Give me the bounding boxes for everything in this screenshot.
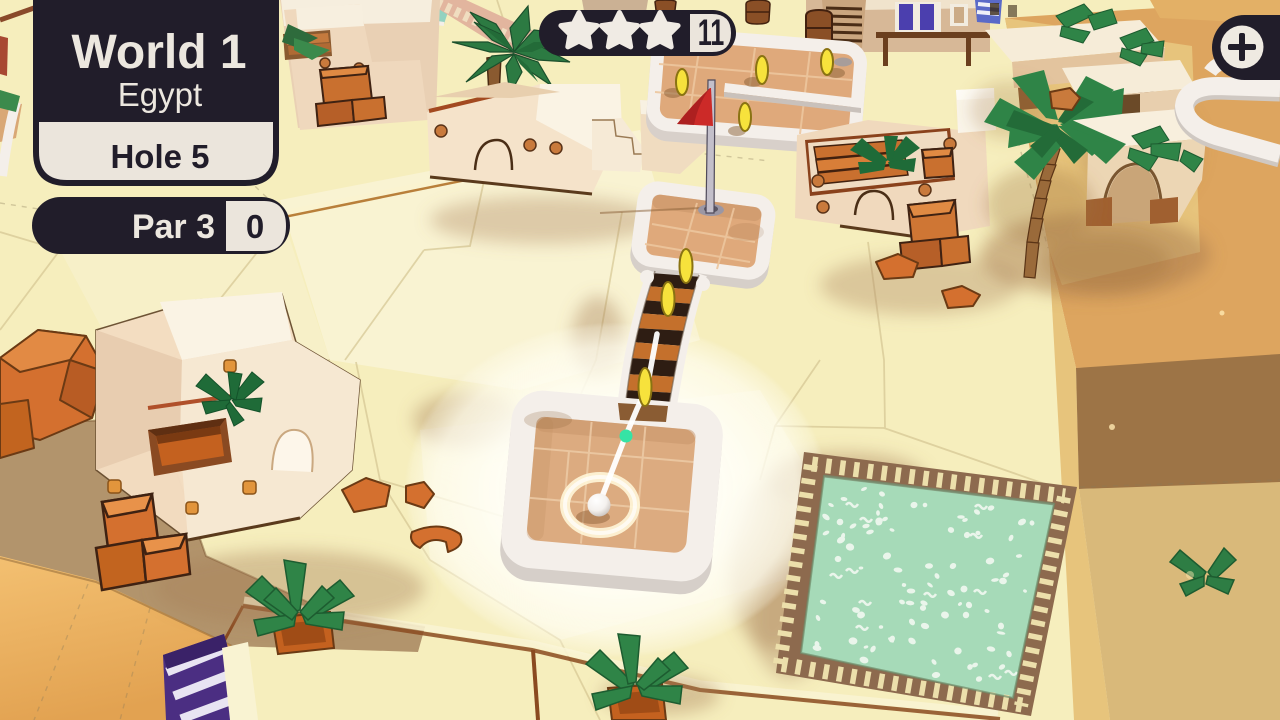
svg-text:11: 11 xyxy=(698,11,725,53)
svg-text:Egypt: Egypt xyxy=(118,76,202,113)
svg-text:World 1: World 1 xyxy=(71,26,246,79)
svg-text:0: 0 xyxy=(246,208,264,245)
svg-text:Hole 5: Hole 5 xyxy=(110,138,209,175)
svg-text:Par 3: Par 3 xyxy=(132,208,215,246)
